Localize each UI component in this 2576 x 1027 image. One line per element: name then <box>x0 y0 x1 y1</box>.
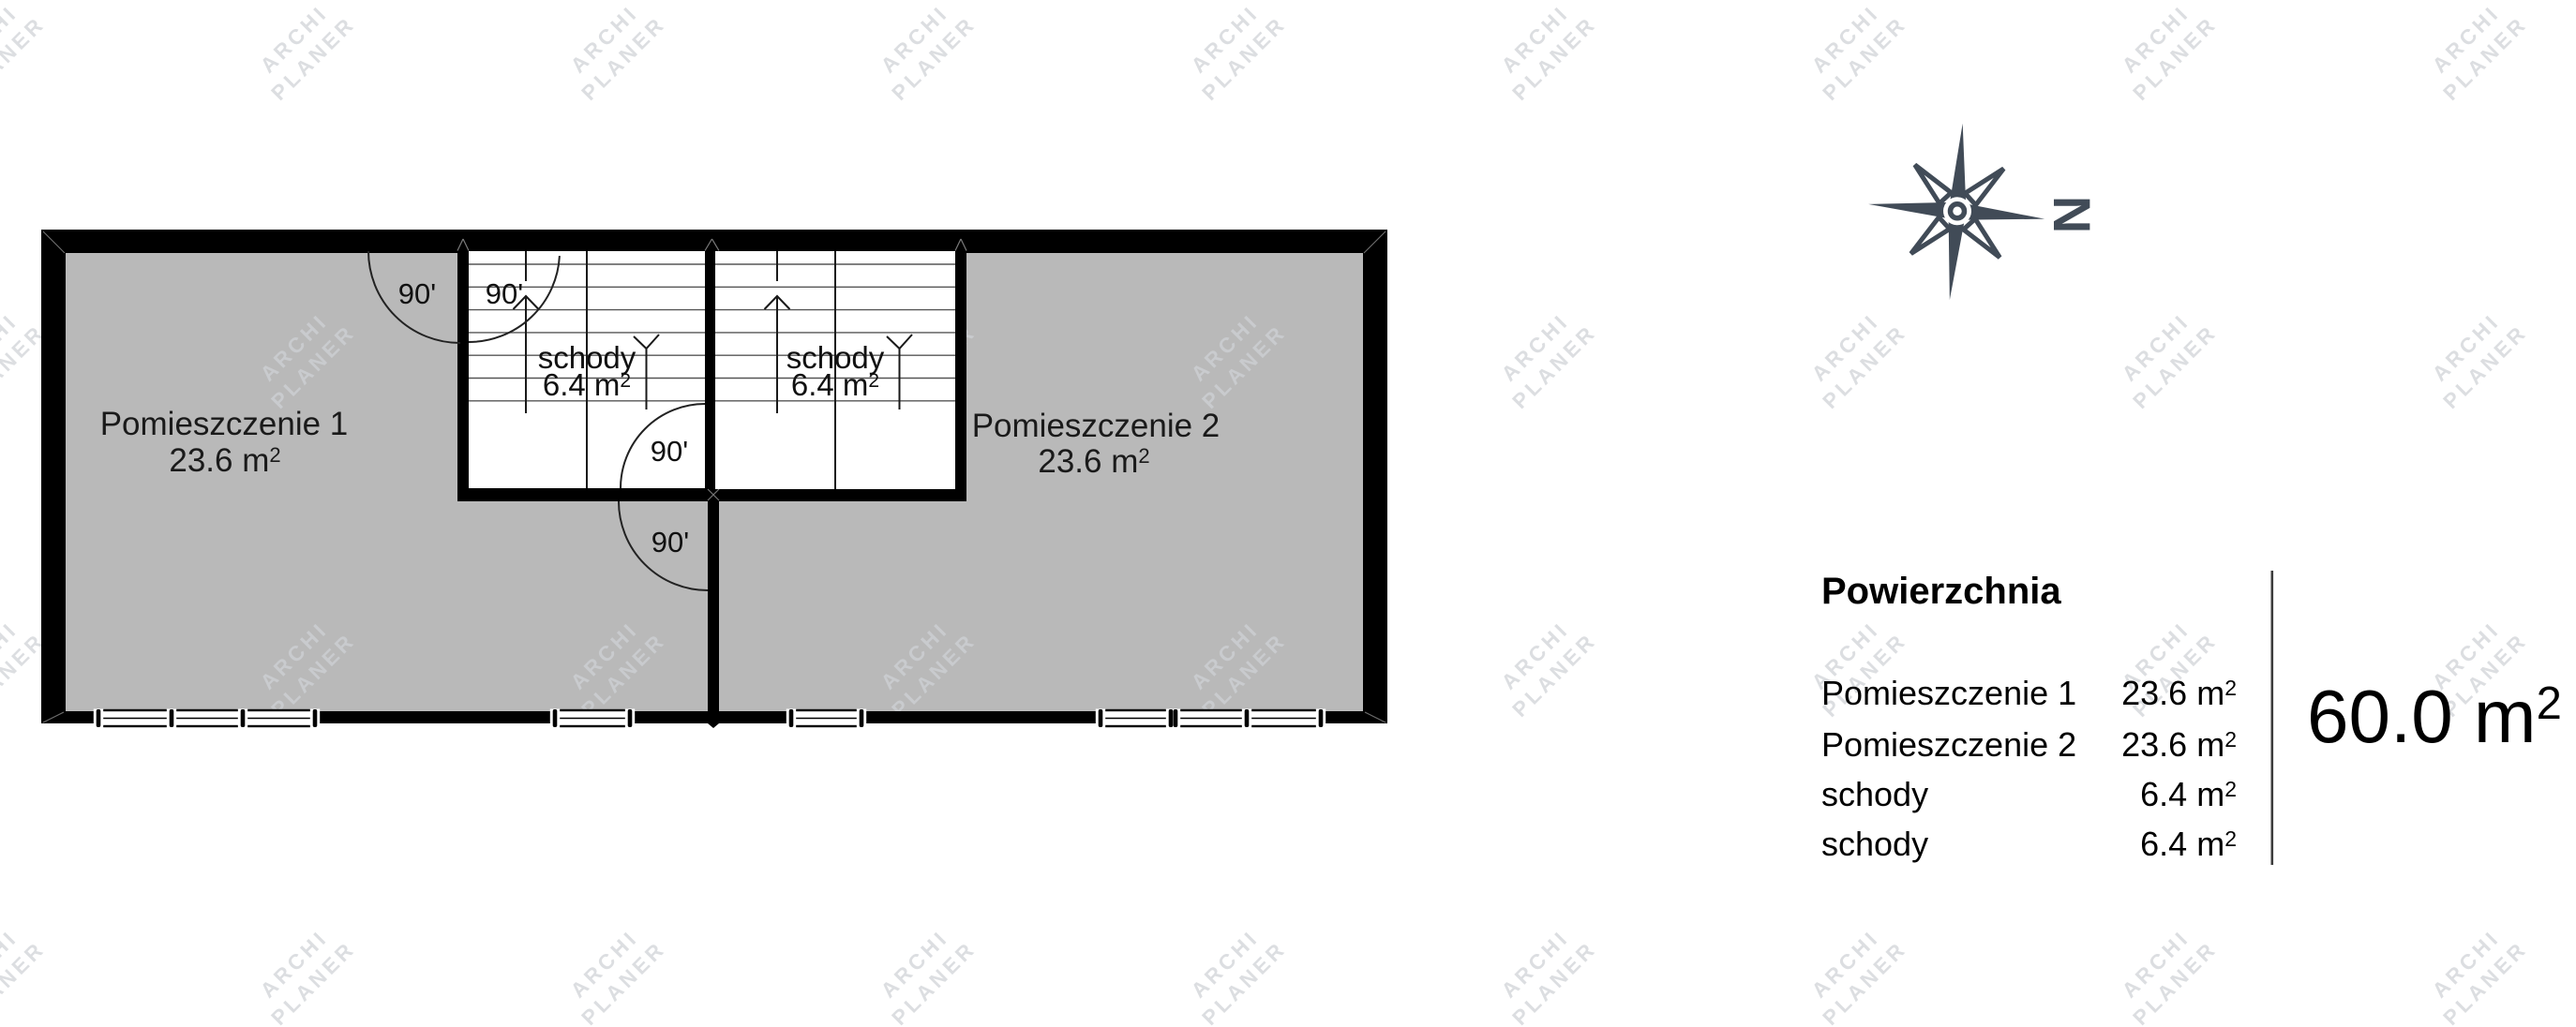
svg-text:90': 90' <box>651 435 688 468</box>
svg-text:Powierzchnia: Powierzchnia <box>1821 571 2061 612</box>
svg-text:23.6 m2: 23.6 m2 <box>1038 443 1149 480</box>
svg-text:N: N <box>2043 196 2102 233</box>
svg-text:90': 90' <box>651 526 689 558</box>
svg-text:Pomieszczenie 1: Pomieszczenie 1 <box>100 406 349 442</box>
svg-text:Pomieszczenie 2: Pomieszczenie 2 <box>1821 725 2076 764</box>
svg-text:6.4 m2: 6.4 m2 <box>2140 775 2237 813</box>
svg-text:23.6 m2: 23.6 m2 <box>2121 725 2237 764</box>
svg-text:90': 90' <box>486 277 523 310</box>
svg-text:23.6 m2: 23.6 m2 <box>169 442 280 479</box>
svg-text:Pomieszczenie 2: Pomieszczenie 2 <box>972 408 1221 444</box>
svg-text:schody: schody <box>1821 775 1928 813</box>
svg-text:90': 90' <box>398 277 436 310</box>
svg-text:schody: schody <box>1821 825 1928 863</box>
svg-text:23.6 m2: 23.6 m2 <box>2121 674 2237 712</box>
svg-text:6.4 m2: 6.4 m2 <box>791 367 879 402</box>
svg-text:6.4 m2: 6.4 m2 <box>2140 825 2237 863</box>
svg-text:Pomieszczenie 1: Pomieszczenie 1 <box>1821 674 2076 712</box>
svg-text:6.4 m2: 6.4 m2 <box>543 367 631 402</box>
svg-text:60.0 m2: 60.0 m2 <box>2307 675 2562 758</box>
